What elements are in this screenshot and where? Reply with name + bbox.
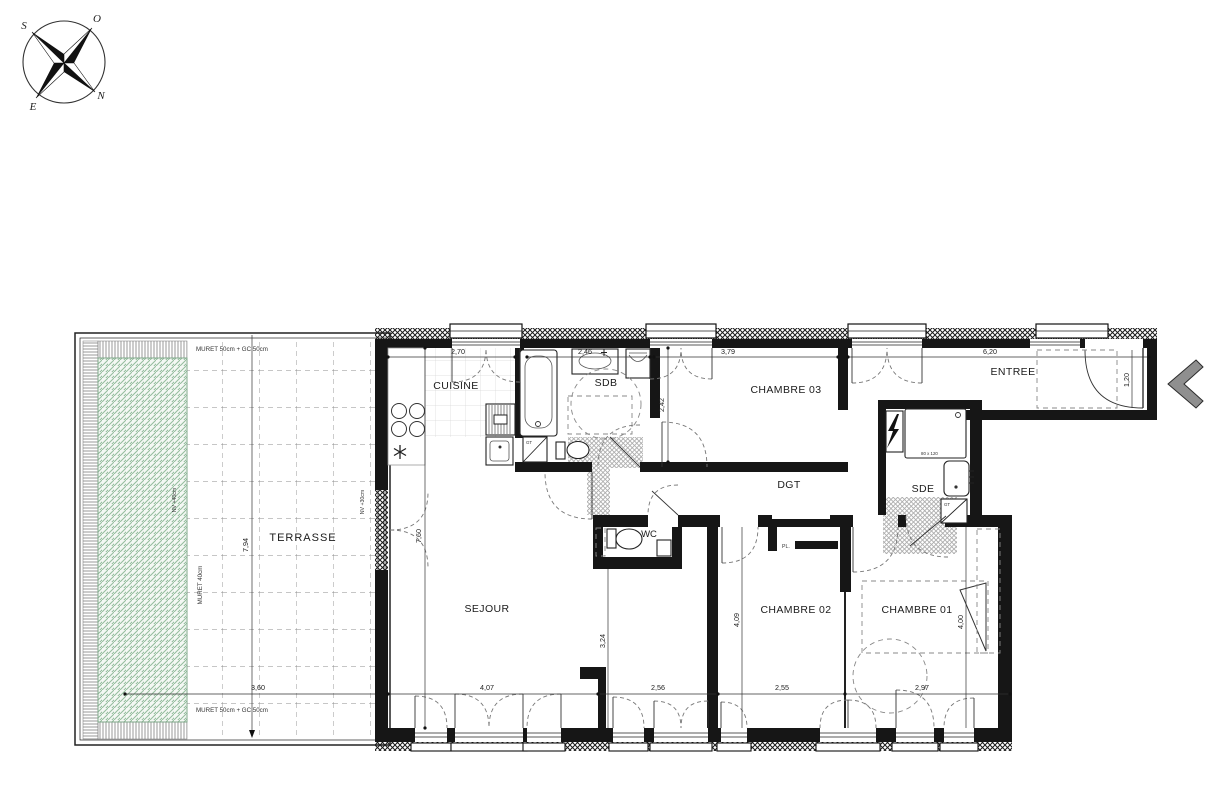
shower-size-label: 80 x 120 xyxy=(921,451,938,456)
floor-plan-page: O S N E MURET 50cm + GC 50cm MURET 50cm … xyxy=(0,0,1223,800)
dim-chambre01-depth: 4,00 xyxy=(956,615,965,629)
facade-pier xyxy=(598,667,606,728)
shower-tray: 80 x 120 xyxy=(905,409,966,458)
entree-label: ENTREE xyxy=(991,366,1036,378)
wc-label: WC xyxy=(641,529,657,540)
terrace-depth-dim: 7,94 xyxy=(241,538,250,552)
dim-chambre03-width: 3,79 xyxy=(721,347,735,356)
technical-duct-sde-label: GT xyxy=(944,502,950,507)
sdb-dashed-zone xyxy=(568,396,632,434)
terrace-muret-note-top: MURET 50cm + GC 50cm xyxy=(196,346,268,353)
terrace-muret-top-band xyxy=(98,341,187,358)
dim-sejour-width-right: 2,56 xyxy=(651,683,665,692)
entry-chevron-icon xyxy=(1168,360,1203,408)
chambre02-label: CHAMBRE 02 xyxy=(760,604,831,616)
terrace-width-dim: 3,60 xyxy=(251,683,265,692)
dim-sdb-width: 2,46 xyxy=(578,347,592,356)
cuisine-label: CUISINE xyxy=(433,380,478,392)
placard-label: PL. xyxy=(782,544,790,550)
facade-bottom xyxy=(375,667,1012,751)
terrace-planter-level-note: NV +40cm xyxy=(172,488,178,512)
dim-sejour-width-left: 4,07 xyxy=(480,683,494,692)
closet-wall-top xyxy=(768,519,838,527)
sdb-toilet xyxy=(556,442,589,460)
electrical-panel xyxy=(886,411,903,452)
floor-plan-drawing: O S N E MURET 50cm + GC 50cm MURET 50cm … xyxy=(0,0,1223,800)
compass-south-label: S xyxy=(21,20,27,32)
sdb-label: SDB xyxy=(595,377,618,389)
dim-chambre01-width: 2,97 xyxy=(915,683,929,692)
oven-column xyxy=(486,404,515,435)
compass-east-label: E xyxy=(29,101,37,113)
dgt-label: DGT xyxy=(777,479,801,491)
technical-duct-sde: GT xyxy=(941,499,967,523)
kitchen-sink xyxy=(486,437,513,465)
terrace-label: TERRASSE xyxy=(269,532,336,544)
dim-chambre03-depth: 2,42 xyxy=(657,398,666,412)
technical-duct-bath-label: GT xyxy=(526,440,532,445)
sde-label: SDE xyxy=(912,483,935,495)
terrace-muret-bottom-band xyxy=(98,722,187,739)
terrace-area: MURET 50cm + GC 50cm MURET 50cm + GC 50c… xyxy=(75,333,390,745)
terrace-muret-note-bottom: MURET 50cm + GC 50cm xyxy=(196,707,268,714)
dim-sejour-depth: 7,60 xyxy=(414,529,423,543)
bottom-window-sills xyxy=(411,743,978,751)
facade-top xyxy=(375,324,1157,348)
compass-rose-icon: O S N E xyxy=(21,13,105,113)
washing-machine xyxy=(626,349,650,378)
terrace-planter xyxy=(98,358,187,722)
wc-toilet xyxy=(616,529,642,549)
chambre01-clearance-circle xyxy=(853,639,927,713)
dim-cuisine-width: 2,70 xyxy=(451,347,465,356)
sde-washbasin xyxy=(944,461,974,496)
bathtub xyxy=(520,350,557,436)
dim-sejour-depth-right: 3,24 xyxy=(598,634,607,648)
wc-fixtures xyxy=(596,528,671,556)
technical-duct-bath: GT xyxy=(523,437,547,462)
entree-closet xyxy=(1037,350,1117,408)
terrace-muret-note-left: MURET 40cm xyxy=(197,566,204,605)
sejour-label: SEJOUR xyxy=(465,603,510,615)
terrace-muret-left-band xyxy=(83,341,98,739)
dim-entree-width: 6,20 xyxy=(983,347,997,356)
compass-west-label: O xyxy=(93,13,101,25)
dim-chambre02-depth: 4,09 xyxy=(732,613,741,627)
dim-entree-door: 1,20 xyxy=(1122,373,1131,387)
dim-chambre02-width: 2,55 xyxy=(775,683,789,692)
terrace-level-note: NV +30cm xyxy=(360,490,366,514)
hall-hatch-2 xyxy=(587,468,610,515)
chambre03-label: CHAMBRE 03 xyxy=(750,384,821,396)
compass-north-label: N xyxy=(96,90,105,102)
chambre01-label: CHAMBRE 01 xyxy=(881,604,952,616)
